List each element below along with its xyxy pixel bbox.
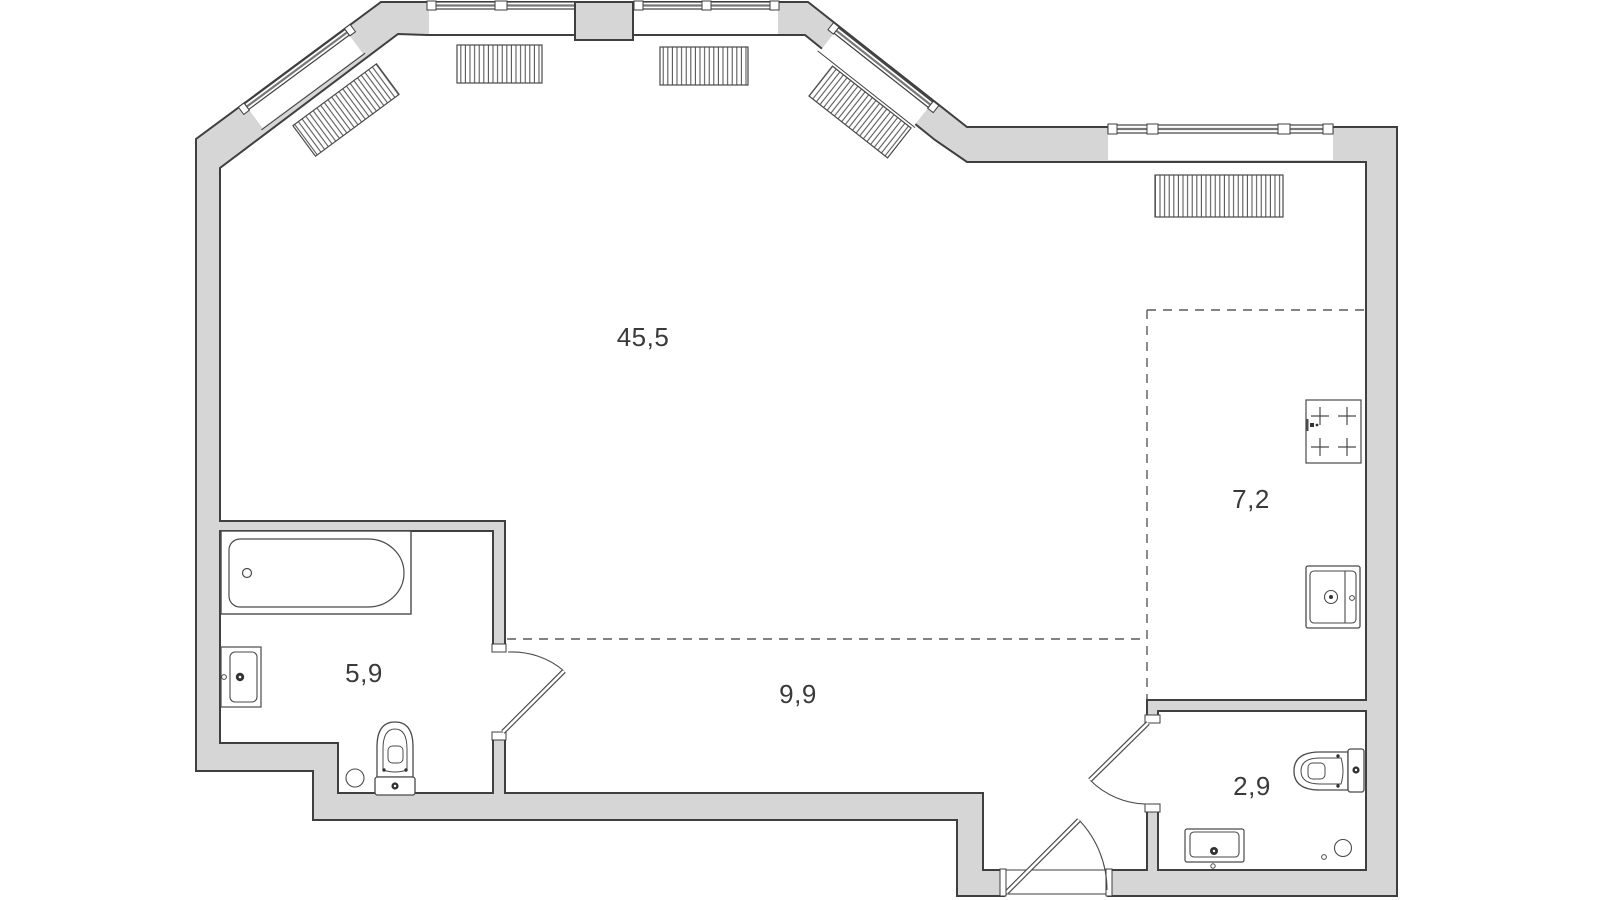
door-opening [1145, 723, 1160, 804]
radiator [660, 47, 748, 85]
window-mullion [634, 1, 643, 10]
door-opening [1005, 869, 1107, 897]
door-jamb [1000, 869, 1006, 896]
window-sill [1108, 133, 1333, 160]
floor-drain [346, 769, 364, 787]
window-mullion [1147, 124, 1158, 134]
window-mullion [495, 1, 507, 10]
door-jamb [1145, 715, 1160, 723]
door-swing-arc [1090, 780, 1148, 804]
right-top-window [1108, 124, 1333, 160]
window-mullion [702, 1, 711, 10]
bathtub [221, 531, 411, 614]
floor-plan-page: 45,5 7,2 5,9 9,9 2,9 [0, 0, 1600, 900]
entrance-door [1000, 820, 1112, 897]
door-leaf-inner [503, 671, 564, 732]
door-jamb [1145, 804, 1160, 812]
water-connection [1211, 864, 1215, 868]
wc-washbasin [1185, 829, 1244, 868]
wc-fixtures [1185, 749, 1364, 868]
wc-area-label: 2,9 [1233, 771, 1271, 801]
bathroom-toilet [375, 722, 415, 795]
drain-dot [1322, 855, 1327, 860]
floor-drain [1335, 840, 1352, 857]
room-labels: 45,5 7,2 5,9 9,9 2,9 [345, 322, 1271, 801]
window-jamb [1108, 124, 1117, 134]
living-room-area-label: 45,5 [617, 322, 670, 352]
door-swing-arc [508, 652, 564, 671]
door-jamb [492, 732, 506, 740]
bathroom-door [492, 644, 564, 740]
wc-toilet [1294, 749, 1364, 792]
wc-door [1090, 715, 1160, 812]
radiator [1155, 175, 1283, 217]
door-jamb [492, 644, 506, 652]
window-jamb [1323, 124, 1333, 134]
window-jamb [770, 1, 779, 10]
door-opening [492, 651, 506, 732]
hallway-area-label: 9,9 [779, 679, 817, 709]
window-mullion [1278, 124, 1290, 134]
kitchen-sink [1306, 566, 1360, 628]
door-leaf-inner [1090, 723, 1148, 780]
bathroom-area-label: 5,9 [345, 658, 383, 688]
bathtub-drain [243, 569, 252, 578]
kitchen-area-label: 7,2 [1232, 484, 1270, 514]
radiator [457, 45, 542, 83]
window-jamb [427, 1, 436, 10]
window-pier [575, 2, 633, 40]
bathroom-washbasin [221, 647, 261, 707]
kitchen-fixtures [1306, 400, 1361, 628]
water-connection [222, 675, 227, 680]
floor-plan-drawing: 45,5 7,2 5,9 9,9 2,9 [0, 0, 1600, 900]
stove [1306, 400, 1361, 463]
